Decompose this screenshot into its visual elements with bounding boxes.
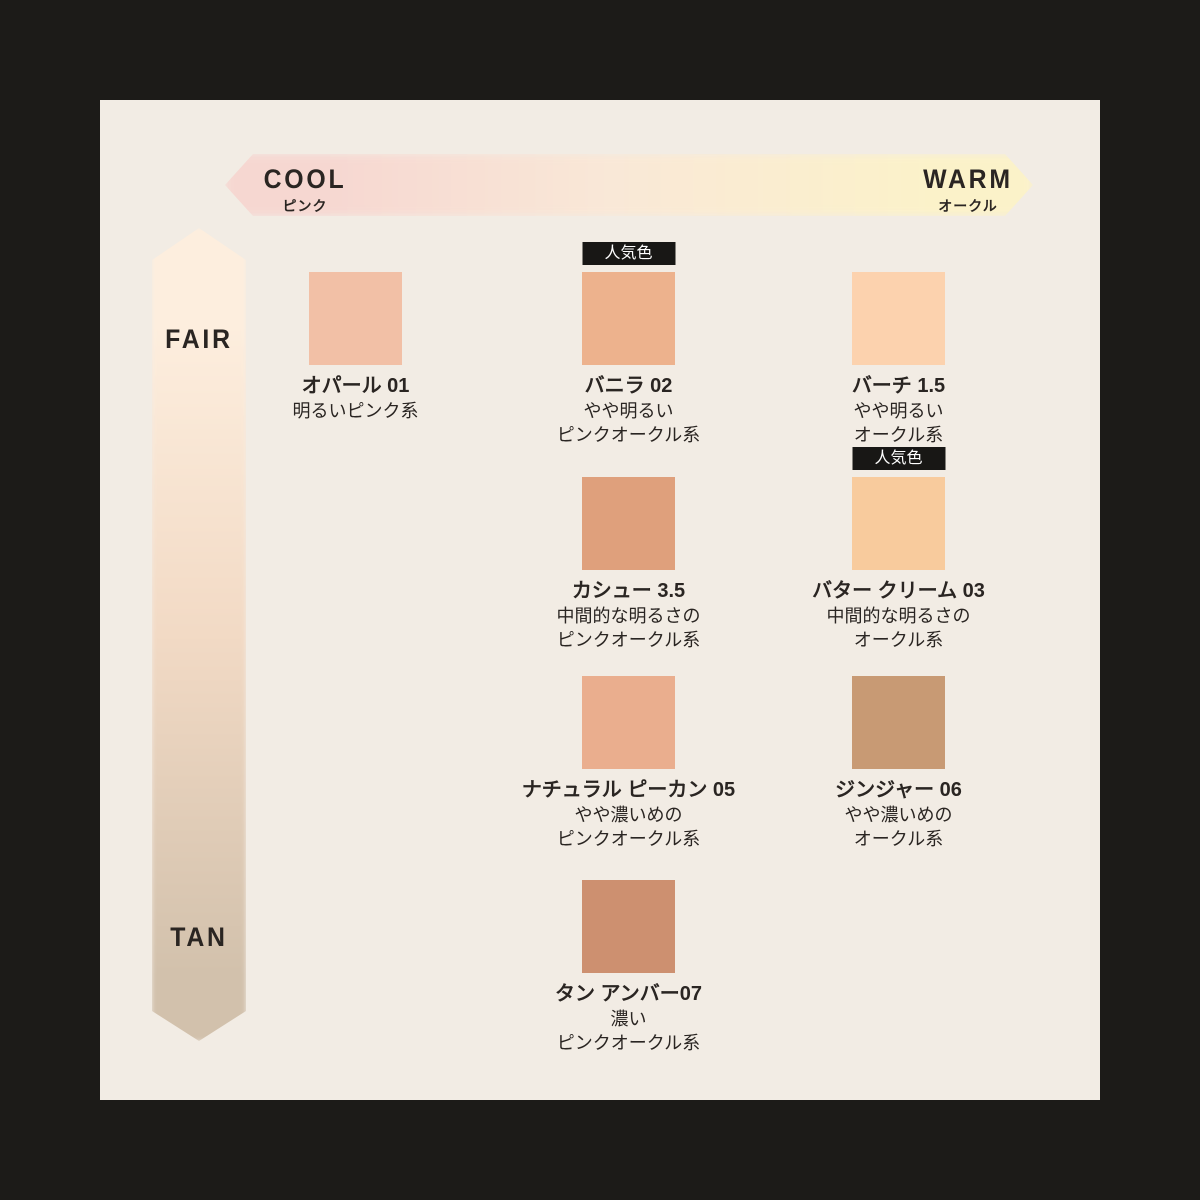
shade-description: 明るいピンク系 <box>236 399 476 423</box>
swatch-wrap: 人気色 <box>852 477 945 570</box>
warm-label: WARM <box>904 164 1033 194</box>
shade-name: オパール 01 <box>236 375 476 398</box>
swatch-wrap <box>309 272 402 365</box>
shade-swatch <box>582 477 675 570</box>
shade-name: カシュー 3.5 <box>509 580 749 603</box>
shade-name: バター クリーム 03 <box>779 580 1019 603</box>
popular-badge: 人気色 <box>852 447 945 470</box>
shade-description: 中間的な明るさのオークル系 <box>779 604 1019 652</box>
shade-description: やや濃いめのオークル系 <box>779 803 1019 851</box>
shade-description: 中間的な明るさのピンクオークル系 <box>509 604 749 652</box>
tan-axis-label: TAN <box>149 922 249 952</box>
shade-description: 濃いピンクオークル系 <box>509 1007 749 1055</box>
shade-swatch <box>852 272 945 365</box>
shade-cell: タン アンバー07 濃いピンクオークル系 <box>509 880 749 1055</box>
shade-swatch <box>852 676 945 769</box>
shade-cell: カシュー 3.5 中間的な明るさのピンクオークル系 <box>509 477 749 652</box>
swatch-wrap: 人気色 <box>582 272 675 365</box>
shade-name: ナチュラル ピーカン 05 <box>509 779 749 802</box>
shade-name: バーチ 1.5 <box>779 375 1019 398</box>
swatch-wrap <box>582 477 675 570</box>
cool-sublabel: ピンク <box>235 197 375 215</box>
shade-name: ジンジャー 06 <box>779 779 1019 802</box>
shade-cell: バーチ 1.5 やや明るいオークル系 <box>779 272 1019 447</box>
shade-chart-panel: COOL ピンク WARM オークル FAIR TAN オパール 01 明るいピ… <box>100 100 1100 1100</box>
shade-cell: オパール 01 明るいピンク系 <box>236 272 476 423</box>
swatch-wrap <box>852 272 945 365</box>
cool-axis-label: COOL ピンク <box>235 164 375 215</box>
shade-description: やや明るいピンクオークル系 <box>509 399 749 447</box>
shade-cell: 人気色 バター クリーム 03 中間的な明るさのオークル系 <box>779 477 1019 652</box>
shade-description: やや明るいオークル系 <box>779 399 1019 447</box>
page-background: { "panel": { "background": "#f2ece4", "o… <box>0 0 1200 1200</box>
shade-name: タン アンバー07 <box>509 983 749 1006</box>
shade-swatch <box>309 272 402 365</box>
shade-swatch <box>582 880 675 973</box>
shade-swatch <box>582 676 675 769</box>
swatch-wrap <box>582 880 675 973</box>
warm-axis-label: WARM オークル <box>898 164 1038 215</box>
shade-name: バニラ 02 <box>509 375 749 398</box>
fair-label: FAIR <box>153 324 245 354</box>
shade-cell: 人気色 バニラ 02 やや明るいピンクオークル系 <box>509 272 749 447</box>
cool-label: COOL <box>241 164 370 194</box>
shade-description: やや濃いめのピンクオークル系 <box>509 803 749 851</box>
swatch-wrap <box>582 676 675 769</box>
popular-badge: 人気色 <box>582 242 675 265</box>
tan-label: TAN <box>153 922 245 952</box>
swatch-wrap <box>852 676 945 769</box>
warm-sublabel: オークル <box>898 197 1038 215</box>
shade-swatch <box>852 477 945 570</box>
shade-swatch <box>582 272 675 365</box>
shade-cell: ナチュラル ピーカン 05 やや濃いめのピンクオークル系 <box>509 676 749 851</box>
fair-axis-label: FAIR <box>149 324 249 354</box>
shade-cell: ジンジャー 06 やや濃いめのオークル系 <box>779 676 1019 851</box>
